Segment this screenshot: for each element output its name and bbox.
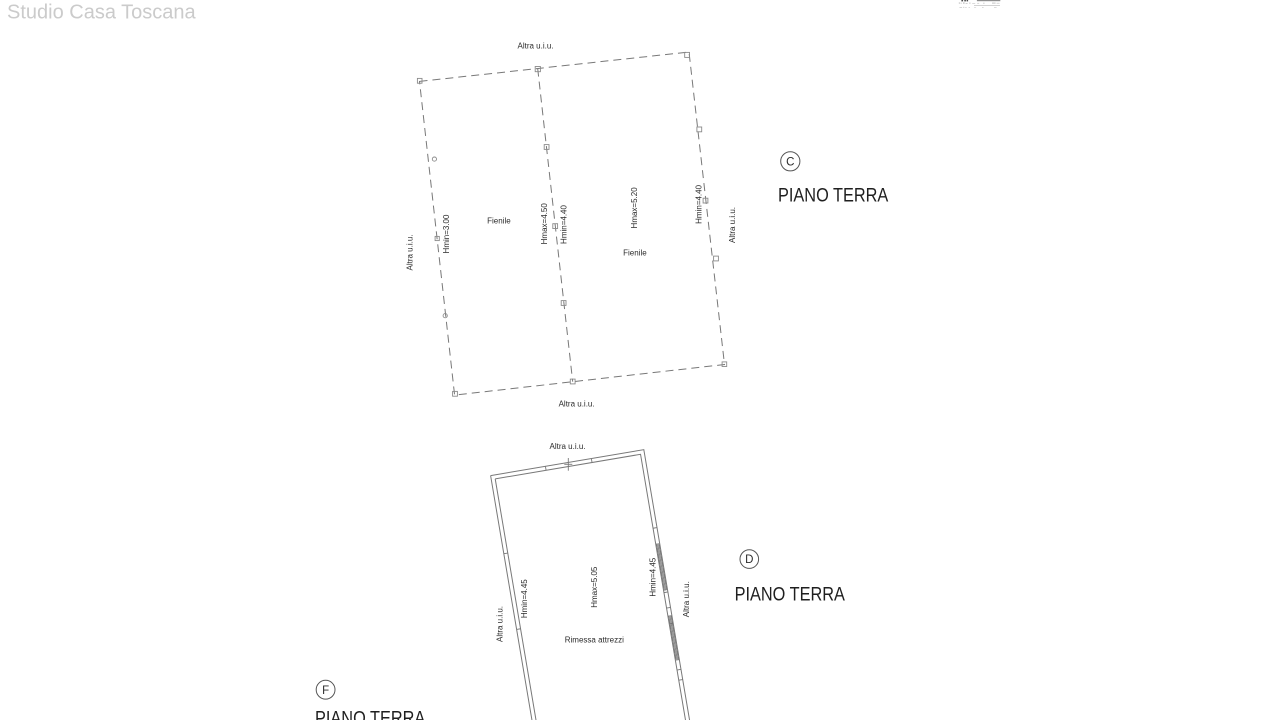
svg-text:Altra u.i.u.: Altra u.i.u. [728,207,737,243]
svg-text:C: C [786,156,794,168]
svg-text:PIANO TERRA: PIANO TERRA [735,584,845,606]
svg-text:Altra u.i.u.: Altra u.i.u. [549,442,585,451]
svg-text:Hmax=5.20: Hmax=5.20 [630,187,639,229]
svg-text:Altra u.i.u.: Altra u.i.u. [559,399,595,408]
svg-text:Rimessa attrezzi: Rimessa attrezzi [565,635,624,644]
svg-text:Altra u.i.u.: Altra u.i.u. [496,606,505,642]
svg-text:F: F [322,685,329,697]
svg-text:Studio Casa Toscana: Studio Casa Toscana [7,2,197,24]
svg-text:Hmin=3.00: Hmin=3.00 [442,214,451,253]
svg-text:Altra u.i.u.: Altra u.i.u. [517,42,553,51]
svg-text:D: D [745,554,753,566]
svg-text:Hmin=4.45: Hmin=4.45 [520,579,529,618]
svg-text:Fienile: Fienile [623,248,647,257]
svg-text:PIANO TERRA: PIANO TERRA [315,708,425,720]
svg-text:Hmin=4.40: Hmin=4.40 [560,205,569,244]
svg-text:Hmin=4.40: Hmin=4.40 [694,184,703,223]
svg-text:Altra u.i.u.: Altra u.i.u. [682,581,691,617]
svg-text:Hmax=5.05: Hmax=5.05 [590,566,599,608]
svg-text:Altra u.i.u.: Altra u.i.u. [405,234,414,270]
svg-text:PIANO TERRA: PIANO TERRA [778,185,888,207]
svg-text:Fienile: Fienile [487,217,511,226]
svg-text:Hmin=4.45: Hmin=4.45 [649,557,658,596]
svg-text:Hmax=4.50: Hmax=4.50 [540,203,549,245]
